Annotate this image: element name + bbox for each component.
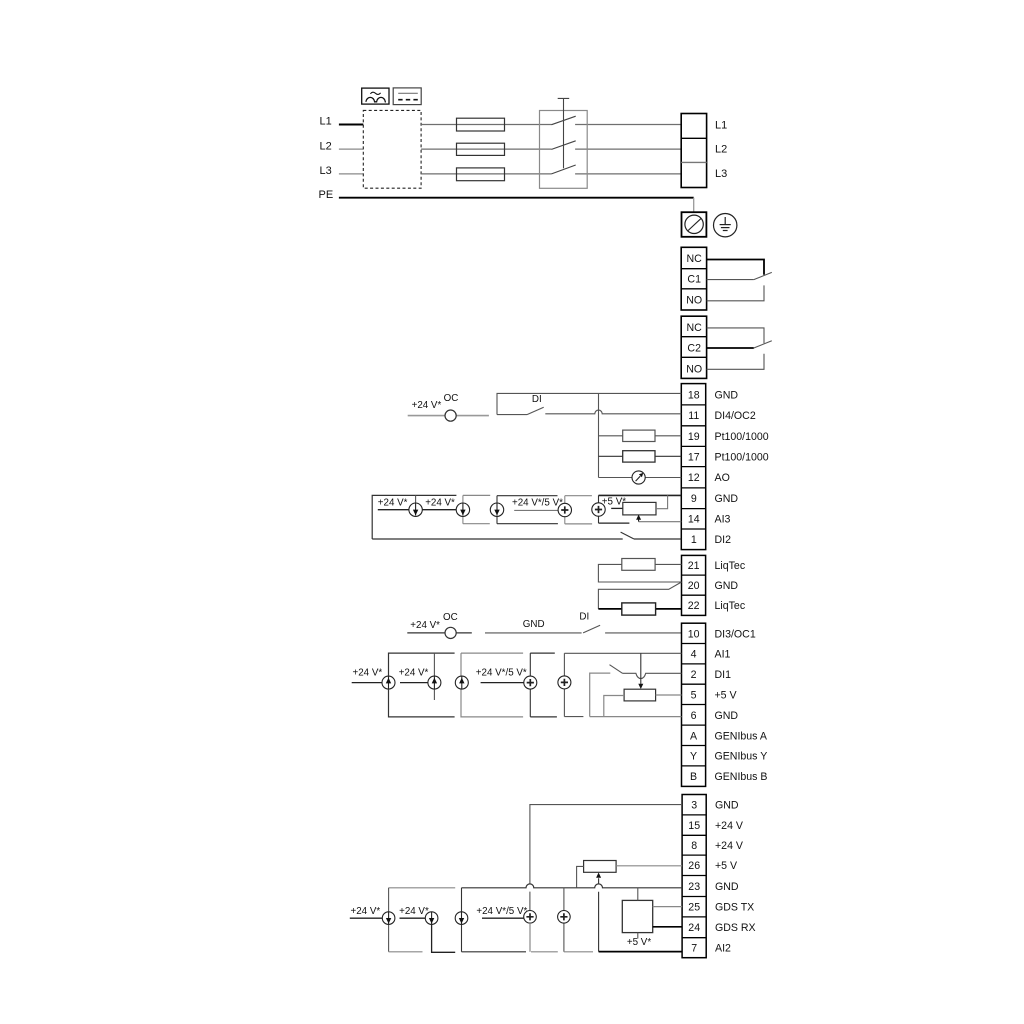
svg-text:DI1: DI1	[715, 669, 732, 681]
svg-text:A: A	[690, 730, 698, 742]
svg-text:12: 12	[688, 472, 700, 484]
svg-text:20: 20	[688, 580, 700, 592]
svg-text:+24 V*: +24 V*	[399, 906, 429, 917]
svg-text:17: 17	[688, 451, 700, 463]
svg-text:+5 V: +5 V	[715, 689, 738, 701]
svg-text:GDS TX: GDS TX	[715, 902, 754, 914]
svg-text:+24 V*: +24 V*	[353, 668, 383, 679]
svg-text:OC: OC	[443, 612, 458, 623]
svg-text:Pt100/1000: Pt100/1000	[715, 451, 769, 463]
svg-text:Y: Y	[690, 751, 697, 763]
svg-text:+5 V*: +5 V*	[627, 937, 651, 948]
svg-text:GND: GND	[715, 493, 739, 505]
svg-text:3: 3	[691, 800, 697, 812]
svg-text:9: 9	[691, 493, 697, 505]
svg-text:AI1: AI1	[715, 649, 731, 661]
svg-text:22: 22	[688, 600, 700, 612]
svg-text:GND: GND	[715, 800, 739, 812]
svg-text:+5 V: +5 V	[715, 860, 738, 872]
svg-text:NO: NO	[686, 295, 702, 307]
svg-text:GND: GND	[715, 389, 739, 401]
svg-text:+24 V*: +24 V*	[399, 668, 429, 679]
svg-text:GND: GND	[715, 881, 739, 893]
svg-text:10: 10	[688, 628, 700, 640]
svg-text:DI4/OC2: DI4/OC2	[715, 410, 756, 422]
svg-text:GND: GND	[523, 619, 545, 630]
svg-text:11: 11	[688, 410, 699, 422]
svg-text:21: 21	[688, 560, 700, 572]
svg-text:14: 14	[688, 514, 700, 526]
svg-text:4: 4	[691, 649, 697, 661]
svg-text:DI: DI	[579, 611, 589, 622]
svg-text:8: 8	[691, 840, 697, 852]
svg-text:25: 25	[688, 902, 700, 914]
svg-text:L2: L2	[320, 140, 332, 152]
svg-text:GENIbus A: GENIbus A	[715, 730, 768, 742]
svg-text:L3: L3	[320, 165, 332, 177]
svg-text:+24 V*: +24 V*	[378, 497, 408, 508]
svg-text:+24 V*/5 V*: +24 V*/5 V*	[476, 906, 527, 917]
svg-text:19: 19	[688, 431, 700, 443]
svg-text:AI3: AI3	[715, 514, 731, 526]
svg-text:L1: L1	[320, 116, 332, 128]
svg-text:+24 V: +24 V	[715, 820, 744, 832]
svg-text:GND: GND	[715, 580, 739, 592]
svg-text:26: 26	[688, 860, 700, 872]
svg-text:18: 18	[688, 389, 700, 401]
svg-text:7: 7	[691, 943, 697, 955]
svg-text:GND: GND	[715, 710, 739, 722]
svg-text:NC: NC	[687, 253, 703, 265]
svg-text:AO: AO	[715, 472, 730, 484]
svg-text:PE: PE	[319, 189, 334, 201]
svg-text:Pt100/1000: Pt100/1000	[715, 431, 769, 443]
svg-text:1: 1	[691, 534, 697, 546]
svg-text:NO: NO	[686, 363, 702, 375]
svg-text:2: 2	[691, 669, 697, 681]
svg-text:NC: NC	[687, 322, 703, 334]
svg-text:+24 V*: +24 V*	[351, 906, 381, 917]
svg-text:C2: C2	[687, 343, 701, 355]
svg-text:+24 V*/5 V*: +24 V*/5 V*	[512, 497, 563, 508]
svg-text:+24 V*: +24 V*	[410, 620, 440, 631]
svg-text:15: 15	[688, 820, 700, 832]
svg-text:AI2: AI2	[715, 943, 731, 955]
svg-text:LiqTec: LiqTec	[715, 600, 746, 612]
svg-text:DI: DI	[532, 394, 542, 405]
svg-text:L3: L3	[715, 168, 727, 180]
svg-text:GENIbus Y: GENIbus Y	[715, 751, 768, 763]
svg-text:L2: L2	[715, 144, 727, 156]
svg-text:GDS RX: GDS RX	[715, 922, 756, 934]
svg-text:DI3/OC1: DI3/OC1	[715, 628, 756, 640]
svg-text:5: 5	[691, 689, 697, 701]
svg-text:L1: L1	[715, 119, 727, 131]
svg-text:23: 23	[688, 881, 700, 893]
svg-text:DI2: DI2	[715, 534, 732, 546]
svg-text:OC: OC	[444, 393, 459, 404]
svg-text:+24 V*/5 V*: +24 V*/5 V*	[476, 668, 527, 679]
svg-text:LiqTec: LiqTec	[715, 560, 746, 572]
svg-text:24: 24	[688, 922, 700, 934]
svg-text:+24 V: +24 V	[715, 840, 744, 852]
svg-text:6: 6	[691, 710, 697, 722]
svg-text:+24 V*: +24 V*	[412, 400, 442, 411]
svg-text:+24 V*: +24 V*	[425, 497, 455, 508]
svg-text:C1: C1	[687, 274, 701, 286]
svg-text:B: B	[690, 771, 697, 783]
svg-text:GENIbus B: GENIbus B	[715, 771, 768, 783]
